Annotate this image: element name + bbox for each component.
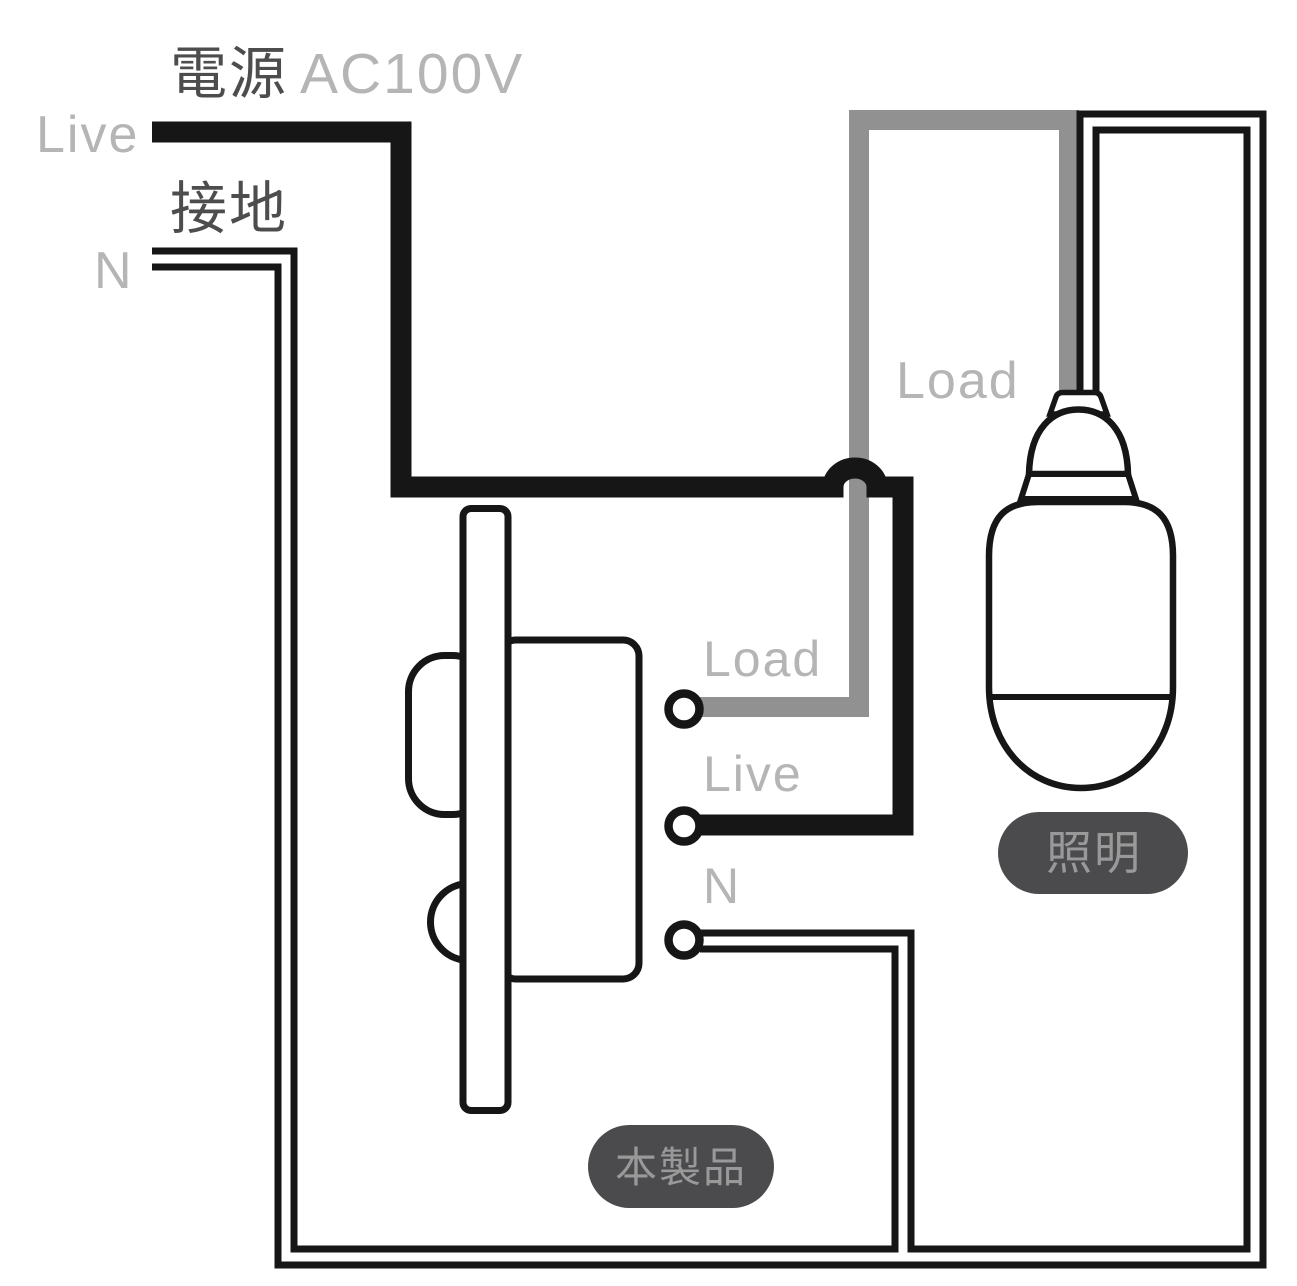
terminal-live-label: Live xyxy=(703,746,803,802)
terminal-load-label: Load xyxy=(703,631,822,687)
terminal-load xyxy=(669,694,700,725)
lamp-socket-band-shape xyxy=(1021,474,1136,499)
lamp-bulb-shape xyxy=(989,502,1173,788)
power-neutral-label: N xyxy=(94,242,134,300)
power-voltage-label: AC100V xyxy=(300,42,524,106)
terminal-live xyxy=(669,811,700,842)
product-badge-label: 本製品 xyxy=(615,1144,747,1191)
power-ground-label-jp: 接地 xyxy=(170,177,288,241)
switch-wall-plate xyxy=(463,509,508,1111)
wiring-diagram: 電源 AC100V Live 接地 N Load Load Live N 照明 … xyxy=(0,0,1297,1286)
terminal-neutral xyxy=(669,925,700,956)
lamp-load-wire-label: Load xyxy=(896,352,1020,410)
terminal-neutral-label: N xyxy=(703,858,741,914)
lighting-badge-label: 照明 xyxy=(1046,827,1142,879)
switch-body xyxy=(500,640,639,979)
power-live-label: Live xyxy=(36,106,139,164)
power-title-jp: 電源 xyxy=(170,42,288,106)
